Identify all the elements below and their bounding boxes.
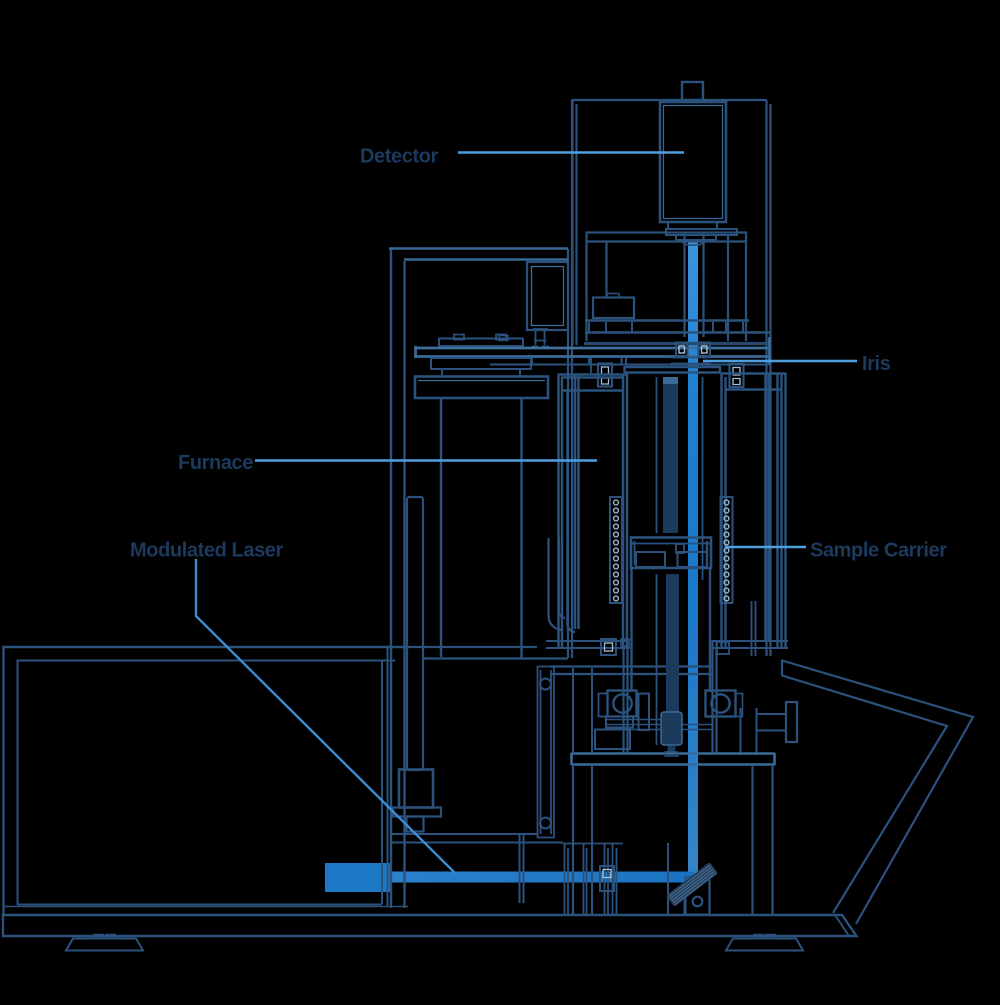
svg-text:Furnace: Furnace <box>178 452 253 474</box>
svg-text:Sample Carrier: Sample Carrier <box>810 540 947 562</box>
svg-text:Iris: Iris <box>862 353 891 375</box>
svg-text:Detector: Detector <box>360 146 439 168</box>
svg-text:Modulated Laser: Modulated Laser <box>130 540 284 562</box>
